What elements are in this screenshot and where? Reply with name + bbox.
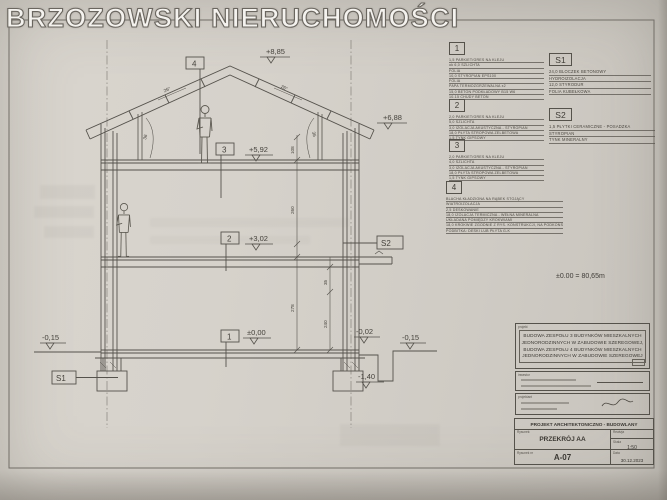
drawing-title-cell: Rysunek: PRZEKRÓJ AA [515,429,610,449]
dimension-chains [294,134,333,353]
legend-num-3: 3 [449,139,465,152]
legend-item-2: 2 2,0 PARKIET/GRES NA KLEJU5,0 SZLICHTA3… [449,99,544,141]
legend-lines-1: 1,5 PARKIET/GRES NA KLEJUok 6,0 SZLICHTA… [449,58,544,100]
text-line: BUDOWA ZESPOŁU 3 BUDYNKÓW MIESZKALNYCH [520,333,645,340]
illegible-text [521,385,591,387]
legend-item-s2: S2 1,5 PŁYTKI CERAMICZNE - POSADZKASTYRO… [549,108,655,144]
legend-num-1: 1 [449,42,465,55]
text-line: TYNK MINERALNY [549,137,655,144]
date-cell: Data 30.12.2023 [610,449,653,465]
dim-right-lower: 240 [323,320,328,328]
legend-num-s2: S2 [549,108,572,121]
level-attic: +5,92 [249,145,268,154]
legend-lines-s2: 1,5 PŁYTKI CERAMICZNE - POSADZKASTYROPIA… [549,124,655,144]
foundations [97,358,363,391]
scale-label: Skala [613,440,621,444]
level-terrain-left: -0,15 [42,333,59,342]
legend-item-3: 3 2,0 PARKIET/GRES NA KLEJU4,0 SZLICHTA3… [449,139,544,181]
investor-label: inwestor [518,373,530,377]
agency-watermark: BRZOZOWSKI NIERUCHOMOŚCI [6,3,459,34]
illegible-text [521,402,569,404]
text-line: BUDOWA ZESPOŁU 4 BUDYNKÓW MIESZKALNYCH [520,347,645,354]
legend-num-2: 2 [449,99,465,112]
number-label: Rysunek nr [517,451,533,455]
level-terrain-right: -0,15 [402,333,419,342]
level-foundation: -1,40 [358,372,375,381]
legend-lines-3: 2,0 PARKIET/GRES NA KLEJU4,0 SZLICHTA3,0… [449,155,544,181]
main-block: PROJEKT ARCHITEKTONICZNO - BUDOWLANY Rys… [514,418,654,465]
project-minibox [632,359,645,366]
floor-slabs [95,160,392,358]
callout-roof: 4 [192,60,197,69]
legend-lines-4: BLACHA KŁADZIONA NA RĄBEK STOJĄCYWIATROI… [446,197,563,234]
legend-item-1: 1 1,5 PARKIET/GRES NA KLEJUok 6,0 SZLICH… [449,42,544,100]
callout-s1: S1 [56,374,66,383]
project-text: BUDOWA ZESPOŁU 3 BUDYNKÓW MIESZKALNYCHJE… [519,330,646,363]
level-threshold: -0,02 [356,327,373,336]
callout-ground: 1 [227,333,232,342]
photographed-blueprint: +8,85 +6,88 +5,92 +3,02 ±0,00 -0,15 -0,0… [0,0,667,500]
designer-label: projektant [518,395,532,399]
level-floor1: +3,02 [249,234,268,243]
project-label: projekt [518,325,528,329]
dim-room: 278 [290,304,295,312]
text-line: PODBITKA: DESKI LUB PŁYTA G-K [446,229,563,234]
drawing-label: Rysunek: [517,430,530,434]
legend-num-4: 4 [446,181,462,194]
legend-lines-2: 2,0 PARKIET/GRES NA KLEJU5,0 SZLICHTA3,0… [449,115,544,141]
mannequin-floor [117,203,131,256]
dim-knee-right: 36 [311,131,317,138]
level-eaves: +6,88 [383,113,402,122]
legend-num-s1: S1 [549,53,572,66]
callout-floor1: 2 [227,235,232,244]
callout-attic: 3 [222,146,227,155]
signature-scribble [601,398,635,410]
designer-box: projektant [515,393,650,415]
number-cell: Rysunek nr A-07 [515,449,610,465]
date-label: Data [613,451,620,455]
text-line: JEDNORODZINNYCH W ZABUDOWIE SZEREGOWEJ [520,353,645,360]
text-line: FOLIA KUBEŁKOWA [549,89,651,96]
title-block: projekt BUDOWA ZESPOŁU 3 BUDYNKÓW MIESZK… [514,320,654,466]
terrain-lines [34,351,437,381]
illegible-text [521,408,557,410]
level-ridge: +8,85 [266,47,285,56]
roof [86,66,374,139]
datum-note: ±0.00 = 80,65m [556,273,605,280]
dim-right-upper: 35 [323,279,328,285]
roof-angle-right: 26° [280,84,289,91]
level-markers [40,57,426,388]
revision-cell: Rewizja [610,429,653,438]
legend-item-4: 4 BLACHA KŁADZIONA NA RĄBEK STOJĄCYWIATR… [446,181,563,234]
illegible-text [521,379,576,381]
level-ground: ±0,00 [247,328,266,337]
mannequin-attic [197,106,212,164]
dim-attic-room: 260 [290,206,295,214]
text-line: JEDNORODZINNYCH W ZABUDOWIE SZEREGOWEJ, [520,340,645,347]
revision-label: Rewizja [613,430,624,434]
legend-item-s1: S1 24,0 BLOCZEK BETONOWYHYDROIZOLACJA12,… [549,53,651,95]
signature-line [597,382,643,383]
investor-box: inwestor [515,371,650,391]
project-box: projekt BUDOWA ZESPOŁU 3 BUDYNKÓW MIESZK… [515,323,650,369]
dim-knee-left: 36 [142,133,148,140]
dim-knee: 108 [290,146,295,154]
legend-lines-s1: 24,0 BLOCZEK BETONOWYHYDROIZOLACJA12,0 S… [549,69,651,95]
callout-s2: S2 [381,239,391,248]
